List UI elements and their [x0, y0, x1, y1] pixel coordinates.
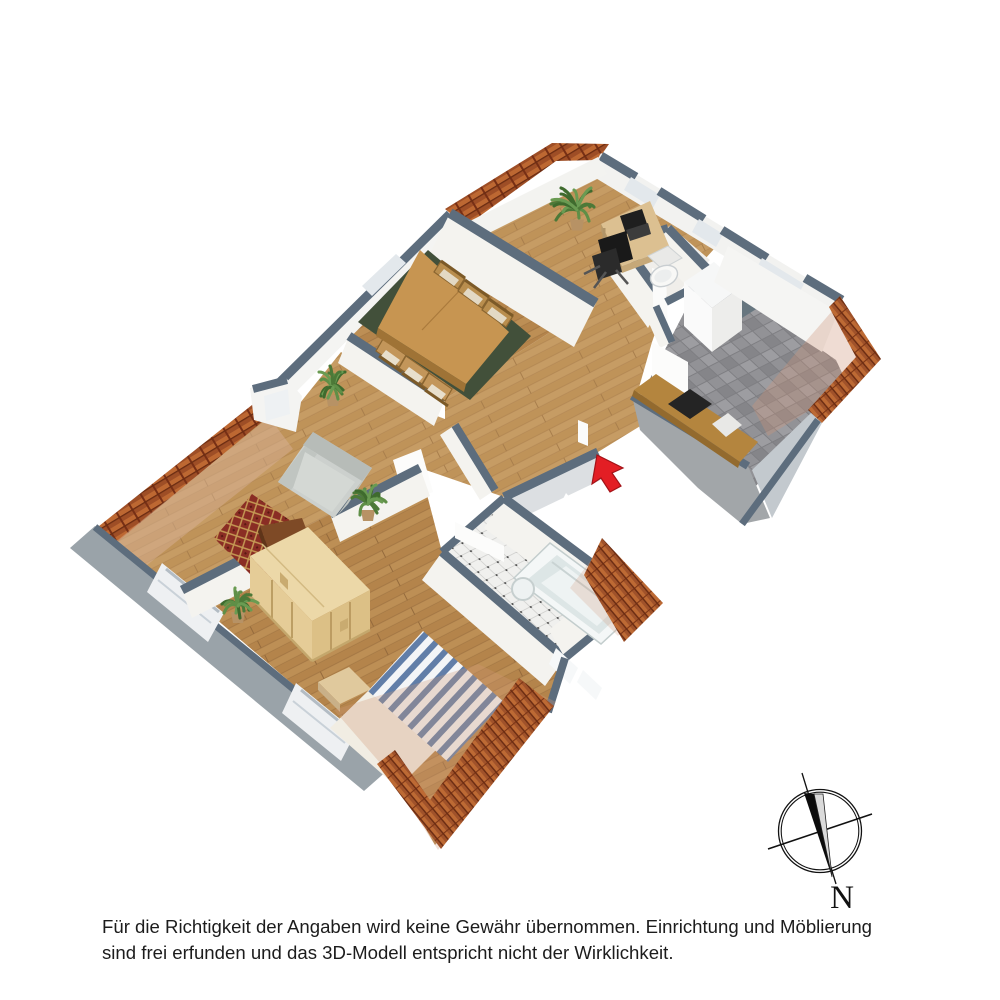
svg-text:N: N — [830, 880, 854, 916]
svg-text:Für die Richtigkeit der Angabe: Für die Richtigkeit der Angaben wird kei… — [102, 916, 872, 937]
svg-text:sind frei erfunden und das 3D-: sind frei erfunden und das 3D-Modell ent… — [102, 942, 674, 963]
